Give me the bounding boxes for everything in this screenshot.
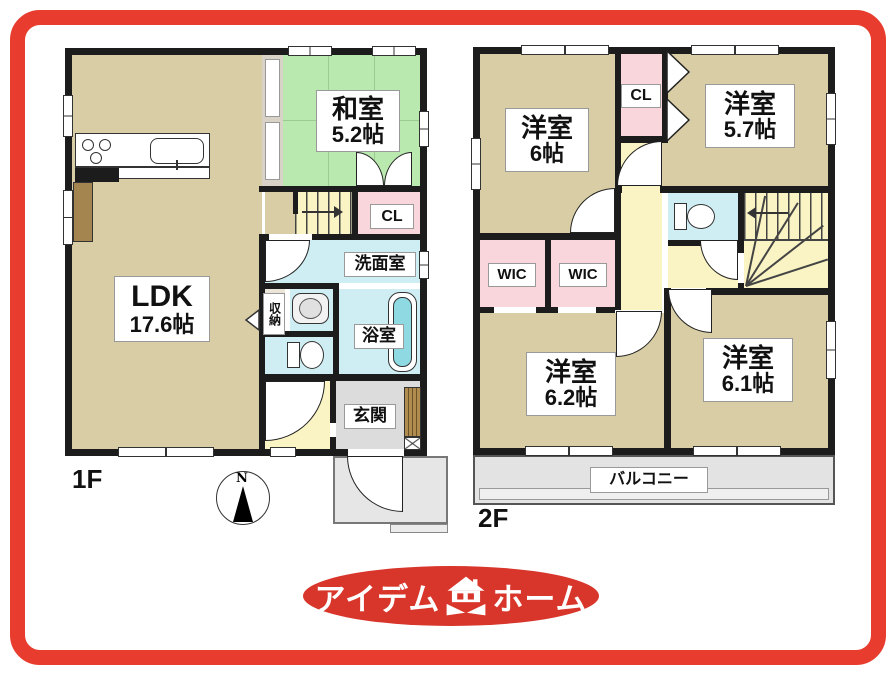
wall — [706, 288, 835, 295]
wall — [259, 283, 339, 289]
wic-label: WIC — [497, 267, 526, 283]
wall — [738, 193, 744, 253]
sliding-door-panel — [265, 122, 280, 180]
stair-arrow — [302, 211, 336, 213]
label-balcony: バルコニー — [590, 467, 708, 493]
wall — [473, 47, 480, 455]
window — [693, 446, 781, 456]
room-size: 5.7帖 — [724, 118, 777, 142]
room-label-bedroom62: 洋室 6.2帖 — [526, 352, 616, 416]
window — [63, 190, 73, 245]
wall — [330, 437, 336, 449]
room-label-bedroom57: 洋室 5.7帖 — [705, 84, 795, 148]
window — [63, 95, 73, 137]
room-size: 6.1帖 — [722, 372, 775, 396]
room-name: 洋室 — [722, 344, 774, 372]
label-bathroom: 浴室 — [354, 324, 404, 349]
label-wic-right: WIC — [559, 263, 607, 287]
room-label-bedroom6: 洋室 6帖 — [505, 108, 589, 172]
wall — [664, 288, 671, 455]
room-label-ldk: LDK 17.6帖 — [114, 276, 210, 342]
room-size: 6.2帖 — [545, 386, 598, 410]
window — [521, 45, 609, 55]
window — [419, 251, 429, 279]
room-name: 洋室 — [545, 358, 597, 386]
label-cl-2f: CL — [621, 84, 661, 108]
toilet-tank-icon — [287, 342, 300, 368]
room-ldk — [72, 55, 262, 449]
toilet-bowl-icon — [687, 204, 715, 229]
house-icon — [444, 575, 488, 617]
balcony-label: バルコニー — [609, 471, 689, 488]
pantry-counter — [73, 182, 93, 242]
window — [525, 446, 613, 456]
wall — [596, 307, 615, 313]
wall — [259, 374, 427, 381]
stair-arrow-head — [334, 206, 343, 218]
closet-label: CL — [630, 87, 651, 104]
porch-step — [390, 524, 448, 533]
stairs-1f — [295, 192, 352, 234]
wall — [473, 233, 615, 240]
wall — [615, 47, 621, 240]
wall — [480, 307, 494, 313]
wall — [75, 168, 119, 182]
shoe-cabinet — [404, 387, 421, 437]
logo-text-right: ホーム — [492, 574, 587, 619]
washroom-label: 洗面室 — [355, 255, 406, 273]
room-label-bedroom61: 洋室 6.1帖 — [703, 338, 793, 402]
wall — [352, 192, 358, 234]
wall — [312, 234, 427, 240]
room-name: 洋室 — [521, 114, 573, 142]
room-label-washitsu: 和室 5.2帖 — [316, 90, 400, 152]
wall — [668, 240, 702, 246]
entrance-step-x — [404, 437, 421, 450]
window — [471, 138, 481, 190]
label-cl-1f: CL — [370, 204, 414, 229]
room-name: LDK — [131, 281, 193, 313]
sliding-door-panel — [265, 59, 280, 117]
closet-folding-door-icon — [666, 50, 692, 142]
window — [826, 321, 836, 379]
stove-burner-icon — [90, 152, 102, 164]
north-label: N — [236, 471, 248, 486]
window — [288, 46, 332, 56]
wall — [330, 381, 336, 423]
wall — [536, 307, 558, 313]
room-name: 洋室 — [724, 90, 776, 118]
window — [826, 93, 836, 145]
bathroom-label: 浴室 — [362, 327, 396, 345]
floor2-label: 2F — [478, 503, 508, 534]
room-size: 5.2帖 — [332, 123, 385, 147]
ldk-stair-opening — [265, 192, 295, 234]
wall — [259, 186, 427, 192]
room-name: 和室 — [332, 95, 384, 123]
window — [270, 447, 296, 457]
north-needle-icon — [233, 486, 253, 522]
toilet-tank-icon — [674, 203, 687, 230]
label-entrance: 玄関 — [344, 404, 396, 429]
vanity-basin-icon — [299, 298, 322, 319]
toilet-bowl-icon — [300, 341, 324, 369]
stair-arrow — [754, 212, 788, 214]
stove-burner-icon — [99, 139, 111, 151]
wall — [660, 186, 835, 193]
wall — [615, 240, 621, 310]
window — [419, 111, 429, 147]
closet-label: CL — [381, 208, 402, 225]
sink-faucet-icon — [176, 160, 178, 170]
room-size: 6帖 — [530, 142, 564, 166]
room-size: 17.6帖 — [130, 313, 195, 337]
wic-label: WIC — [568, 267, 597, 283]
stair-arrow-head — [747, 207, 756, 219]
label-wic-left: WIC — [488, 263, 536, 287]
logo: アイデム ホーム — [303, 566, 599, 626]
window — [372, 46, 416, 56]
logo-text-left: アイデム — [315, 574, 441, 619]
floorplan-image: LDK 17.6帖 和室 5.2帖 CL 洗面室 収納 浴室 玄関 1F — [0, 0, 896, 675]
wall — [545, 240, 551, 307]
window — [691, 45, 779, 55]
wall — [615, 186, 622, 193]
wall — [293, 192, 298, 214]
entrance-label: 玄関 — [353, 407, 387, 425]
label-storage: 収納 — [263, 293, 285, 335]
storage-door-icon — [243, 308, 260, 332]
storage-label: 収納 — [268, 302, 281, 326]
stove-burner-icon — [82, 139, 94, 151]
floor1-label: 1F — [72, 464, 102, 495]
label-washroom: 洗面室 — [344, 252, 416, 277]
window — [118, 447, 214, 457]
